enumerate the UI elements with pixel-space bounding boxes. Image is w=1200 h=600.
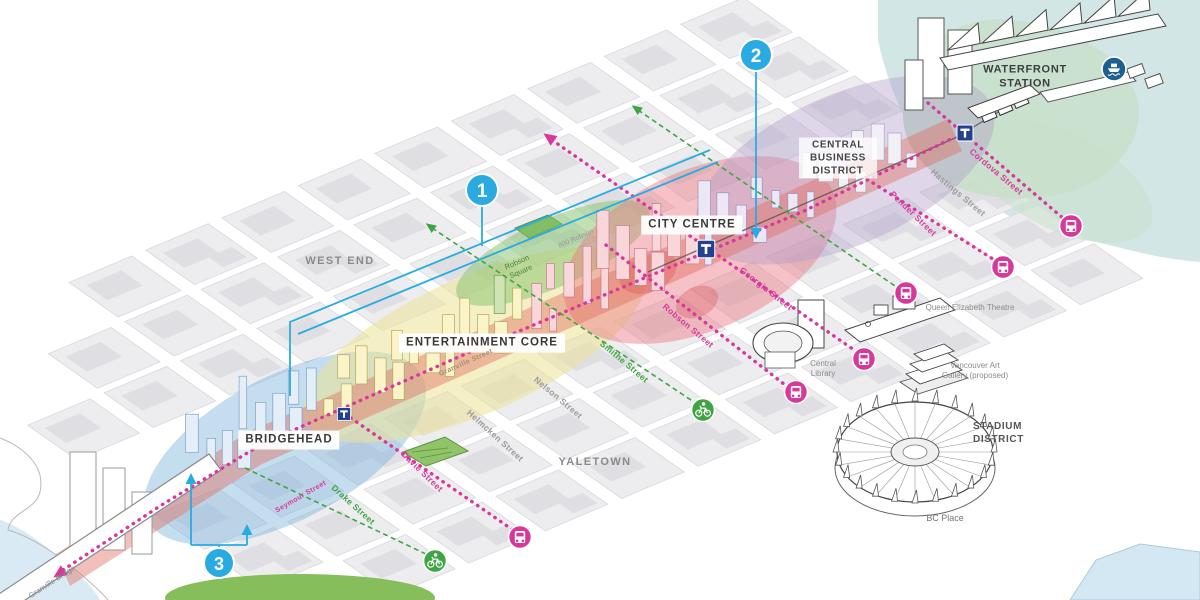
bus-icon (895, 282, 918, 305)
tower (393, 362, 404, 399)
tower (513, 288, 522, 319)
tower (338, 355, 350, 378)
tower (549, 309, 556, 332)
marker-1: 1 (466, 174, 498, 206)
marker-2-number: 2 (751, 46, 762, 67)
bicycle-icon (692, 399, 715, 422)
label-central-library: Central Library (798, 359, 848, 379)
label-stadium-district: STADIUM DISTRICT (973, 420, 1037, 446)
label-central-business-district: CENTRAL BUSINESS DISTRICT (799, 138, 877, 179)
roof-opening (903, 445, 927, 459)
tower (888, 133, 901, 164)
stadium-mast (873, 395, 879, 408)
transit-station-icon (337, 407, 350, 420)
stadium-mast (952, 395, 958, 408)
stadium-mast (856, 403, 862, 416)
tower (597, 210, 609, 268)
label-west-end: WEST END (305, 254, 374, 268)
bus-icon (1060, 215, 1083, 238)
tower (546, 263, 554, 289)
marker-2: 2 (740, 39, 772, 71)
stadium-mast (844, 414, 850, 427)
tower (356, 346, 367, 384)
bus-icon (853, 348, 876, 371)
station-tower-3 (905, 60, 923, 110)
stadium-mast (892, 390, 898, 403)
label-yaletown: YALETOWN (559, 455, 632, 469)
water-bottom-right (1070, 544, 1200, 600)
tower (698, 181, 711, 220)
stadium-mast (968, 403, 974, 416)
bus-icon (509, 526, 532, 549)
marker-3-number: 3 (214, 554, 224, 574)
marker-3: 3 (204, 548, 234, 578)
stadium-mast (833, 439, 839, 452)
bus-icon (785, 381, 808, 404)
label-bc-place: BC Place (926, 513, 964, 525)
marker-1-number: 1 (477, 181, 488, 202)
tower (564, 263, 575, 297)
transit-station-icon (957, 125, 973, 141)
tower (583, 246, 591, 303)
tower (239, 376, 247, 429)
bicycle-icon (424, 550, 447, 573)
ferry-icon (1102, 57, 1126, 81)
granville-corridor-diagram: 1 2 3 WATERFRONT STATION CENTRAL BUSINES… (0, 0, 1200, 600)
tower (772, 191, 780, 208)
tower (306, 368, 316, 410)
label-queen-elizabeth-theatre: Queen Elizabeth Theatre (924, 303, 1016, 313)
tower (807, 192, 814, 218)
tower (222, 430, 232, 464)
bc-place-stadium (833, 388, 997, 516)
label-vancouver-art-gallery: Vancouver Art Gallery (proposed) (940, 361, 1010, 381)
label-waterfront-station: WATERFRONT STATION (970, 63, 1080, 92)
label-bridgehead: BRIDGEHEAD (238, 431, 339, 450)
transit-station-icon (697, 240, 715, 258)
tower (324, 399, 334, 415)
tower (186, 414, 199, 452)
label-city-centre: CITY CENTRE (641, 216, 742, 235)
bus-icon (992, 256, 1015, 279)
stadium-mast (836, 426, 842, 439)
stadium-mast (932, 390, 938, 403)
tower (375, 358, 386, 393)
